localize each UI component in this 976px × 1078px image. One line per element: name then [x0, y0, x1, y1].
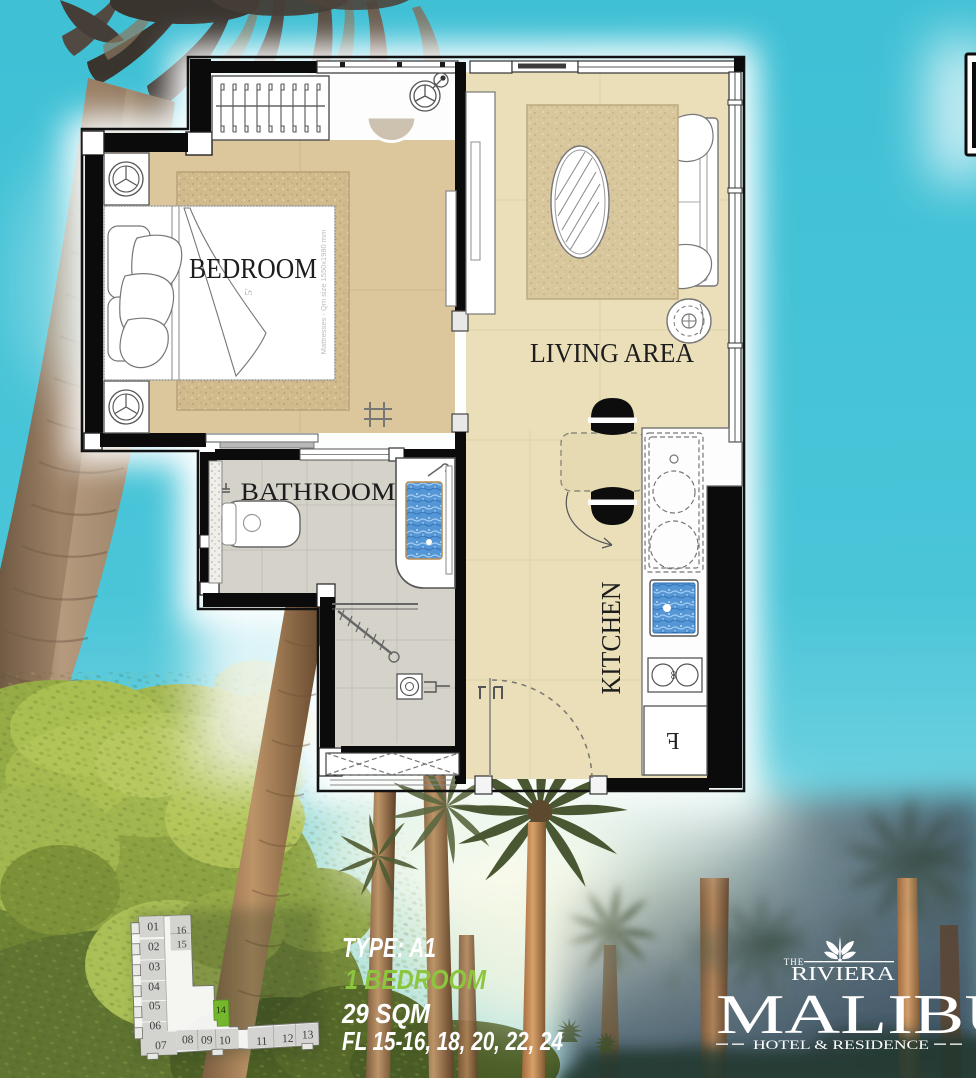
- svg-text:Mattresses - Qm size 1550x1980: Mattresses - Qm size 1550x1980 mm: [319, 230, 328, 355]
- svg-text:07: 07: [155, 1040, 167, 1052]
- svg-text:12: 12: [282, 1033, 294, 1045]
- svg-text:02: 02: [148, 941, 160, 953]
- svg-text:FL 15-16, 18, 20, 22, 24: FL 15-16, 18, 20, 22, 24: [342, 1026, 563, 1056]
- svg-text:F: F: [666, 729, 679, 755]
- svg-text:1 BEDROOM: 1 BEDROOM: [345, 964, 487, 995]
- svg-text:05: 05: [149, 1000, 161, 1012]
- svg-text:HOTEL & RESIDENCE: HOTEL & RESIDENCE: [753, 1037, 929, 1052]
- svg-text:09: 09: [201, 1034, 213, 1046]
- svg-text:5': 5': [243, 288, 255, 296]
- svg-text:BEDROOM: BEDROOM: [189, 253, 317, 285]
- svg-text:10: 10: [219, 1035, 231, 1047]
- svg-text:15: 15: [177, 939, 187, 950]
- svg-text:08: 08: [182, 1034, 194, 1046]
- svg-text:14: 14: [216, 1005, 226, 1016]
- svg-text:LIVING AREA: LIVING AREA: [530, 338, 694, 368]
- svg-text:06: 06: [149, 1020, 161, 1032]
- svg-text:00: 00: [669, 671, 676, 679]
- svg-text:BATHROOM: BATHROOM: [241, 479, 396, 506]
- svg-text:04: 04: [148, 981, 160, 993]
- svg-text:01: 01: [147, 921, 159, 933]
- svg-text:29 SQM: 29 SQM: [341, 998, 430, 1029]
- svg-text:11: 11: [256, 1036, 268, 1048]
- svg-text:16: 16: [176, 925, 186, 936]
- svg-text:TYPE: A1: TYPE: A1: [342, 932, 436, 963]
- svg-text:13: 13: [302, 1029, 314, 1041]
- svg-text:03: 03: [148, 961, 160, 973]
- svg-text:RIVIERA: RIVIERA: [791, 963, 896, 985]
- svg-text:KITCHEN: KITCHEN: [596, 582, 626, 695]
